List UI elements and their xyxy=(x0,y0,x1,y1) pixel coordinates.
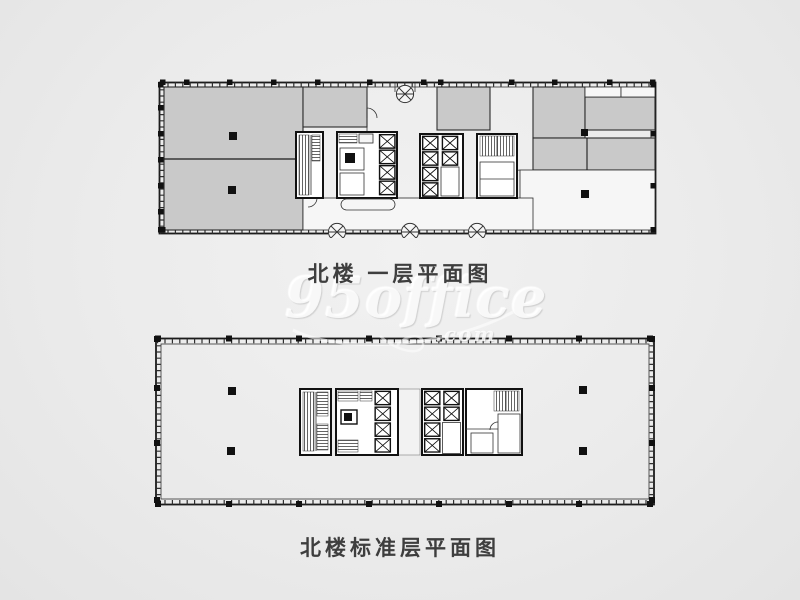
central-core xyxy=(300,389,522,455)
elevator-bank-left xyxy=(336,389,398,455)
stair-core-right xyxy=(466,389,522,455)
elevator-bank-right xyxy=(422,389,463,455)
elevator-bank-right xyxy=(420,134,463,198)
standard-floor-plan-drawing xyxy=(153,334,658,509)
first-floor-plan-drawing xyxy=(157,78,657,238)
standard-floor-caption: 北楼标准层平面图 xyxy=(0,536,800,562)
stair-core-left xyxy=(296,132,323,198)
stair-core-left xyxy=(300,389,331,455)
elevator-lobby-corridor xyxy=(398,389,420,455)
floor-plan-sheet: 北楼 一层平面图 95office .com xyxy=(0,0,800,600)
first-floor-caption: 北楼 一层平面图 xyxy=(0,262,800,288)
stair-core-right xyxy=(477,134,517,198)
elevator-bank-left xyxy=(337,132,397,210)
